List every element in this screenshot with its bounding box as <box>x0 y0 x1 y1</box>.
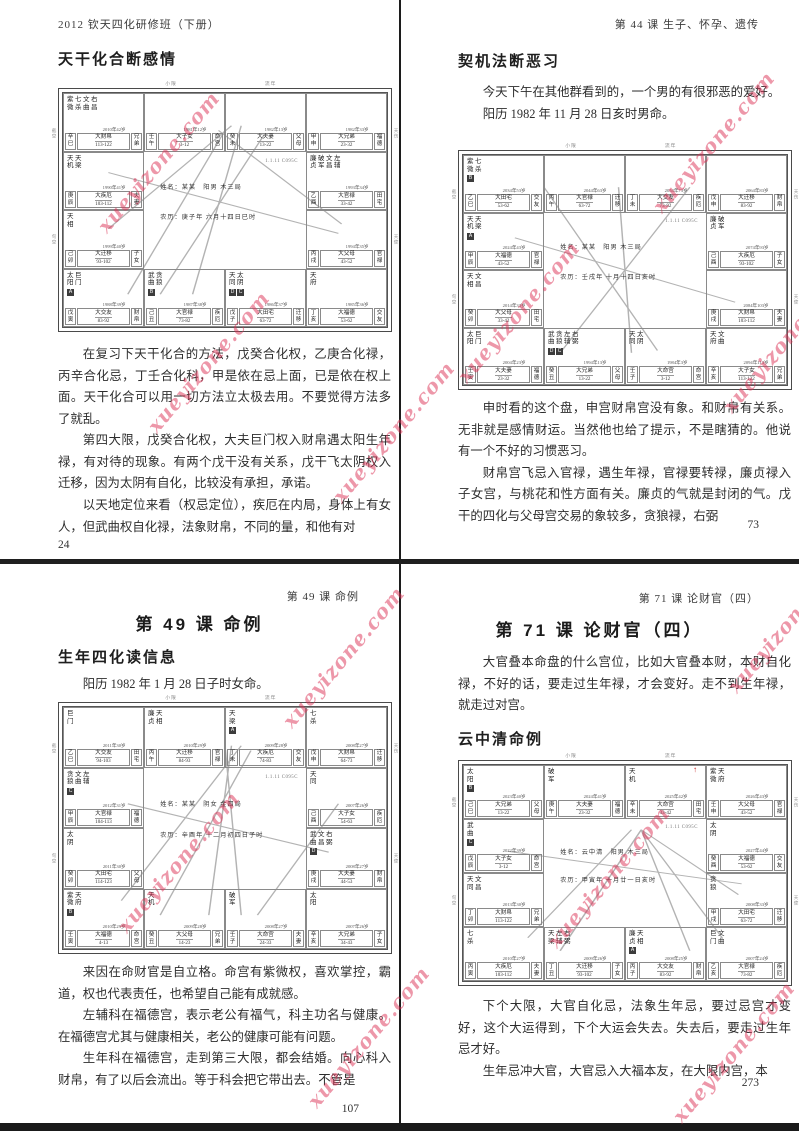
daxian-range: 53-62 <box>498 203 510 210</box>
palace-name-text: 父母 <box>532 802 541 815</box>
palace-name: 夫妻 <box>293 930 304 947</box>
daxian-box: 大子女54-63 <box>320 809 373 826</box>
stem-branch-text: 壬申 <box>709 802 718 815</box>
daxian-box: 大兄弟23-32 <box>320 133 373 150</box>
palace-cell-交友: 紫七 微杀B2034年53岁乙巳大田宅53-62交友 <box>463 155 544 213</box>
daxian-box: 大田宅63-72 <box>239 308 292 325</box>
paragraph: 阳历 1982 年 11 月 28 日亥时男命。 <box>458 104 791 126</box>
daxian-label: 大父母 <box>738 801 755 810</box>
daxian-box: 大官禄33-42 <box>320 191 373 208</box>
daxian-range: 33-42 <box>660 810 672 817</box>
daxian-label: 大官禄 <box>338 192 355 201</box>
palace-cell-交友: 天 梁A2009年28岁丁未大疾厄74-83交友 <box>225 707 306 768</box>
palace-name: 夫妻 <box>774 309 785 326</box>
daxian-range: 13-22 <box>260 142 272 149</box>
star-names: 天文 同昌 <box>467 876 483 891</box>
side-note-label: 天伤 <box>793 797 799 808</box>
daxian-box: 大迁移83-92 <box>720 194 773 211</box>
sihua-badges: D <box>310 848 317 855</box>
palace-name: 命宫 <box>531 854 542 871</box>
stem-branch-text: 己酉 <box>709 253 718 266</box>
palace-cell-命宫: 天太 同阴1984年3岁壬子大命宫3-12命宫 <box>625 328 706 386</box>
star-names: 贪 狼 <box>710 876 718 891</box>
palace-name-text: 财帛 <box>775 195 784 208</box>
sihua-badges: B <box>67 909 74 916</box>
daxian-box: 大疾厄103-112 <box>77 191 130 208</box>
intro-text: 阳历 1982 年 1 月 28 日子时女命。 <box>58 674 391 696</box>
paragraph: 今天下午在其他群看到的，一个男的有很邪恶的爱好。 <box>458 82 791 104</box>
daxian-box: 大父母33-42 <box>477 309 530 326</box>
stem-branch-text: 戊申 <box>709 195 718 208</box>
palace-name-text: 福德 <box>532 368 541 381</box>
palace-strip: 丙午大官禄63-72迁移 <box>546 194 623 211</box>
palace-name-text: 交友 <box>775 856 784 869</box>
palace-name-text: 夫妻 <box>294 932 303 945</box>
palace-name: 福德 <box>612 800 623 817</box>
stem-branch-text: 癸丑 <box>547 368 556 381</box>
daxian-label: 大子女 <box>338 810 355 819</box>
sihua-badges: B <box>467 785 474 792</box>
stem-branch: 己巳 <box>465 800 476 817</box>
palace-name-text: 命宫 <box>132 932 141 945</box>
birth-date: 农历：庚子年 六月十四日巳时 <box>160 212 256 221</box>
page-24: 2012 钦天四化研修班（下册） 天干化合断感情 紫七文右 微杀曲昌2010年4… <box>0 0 399 565</box>
palace-cell-田宅: 廉破文左 贞军昌辅1993年34岁乙酉大官禄33-42田宅 <box>306 152 387 211</box>
stem-branch: 癸未 <box>227 133 238 150</box>
palace-name: 田宅 <box>531 309 542 326</box>
palace-strip: 丁未大交友73-82疾厄 <box>627 194 704 211</box>
palace-name-text: 交友 <box>532 195 541 208</box>
palace-strip: 庚辰大疾厄103-112夫妻 <box>65 191 142 208</box>
palace-cell-迁移: 七 杀2008年27岁戊申大财帛64-73迁移 <box>306 707 387 768</box>
stem-branch-text: 壬子 <box>628 368 637 381</box>
side-note-label: 截空 <box>51 128 57 139</box>
stem-branch: 癸卯 <box>65 870 76 887</box>
daxian-box: 大夫妻23-32 <box>558 800 611 817</box>
star-names: 太巨 阳门 <box>67 272 83 287</box>
paragraph: 在复习下天干化合的方法，戊癸合化权，乙庚合化禄，丙辛合化忌，丁壬合化科，甲是依在… <box>58 344 391 430</box>
daxian-box: 大迁移84-93 <box>158 749 211 766</box>
palace-name-text: 官禄 <box>532 253 541 266</box>
palace-cell-迁移: 天太 同阴DC1986年37岁戊子大田宅63-72迁移 <box>225 269 306 328</box>
sihua-badge: A <box>67 289 74 296</box>
sihua-badges: A <box>467 233 474 240</box>
daxian-label: 大交友 <box>657 194 674 203</box>
daxian-box: 大命宫33-42 <box>639 800 692 817</box>
daxian-box: 大父母14-23 <box>158 930 211 947</box>
daxian-label: 大命宫 <box>257 931 274 940</box>
star-names: 破 军 <box>229 892 237 907</box>
palace-strip: 戊子大田宅63-72迁移 <box>227 308 304 325</box>
daxian-label: 大子女 <box>738 367 755 376</box>
daxian-range: 33-42 <box>498 318 510 325</box>
palace-cell-财帛: 太巨 阳门A1988年39岁戊寅大交友83-92财帛 <box>63 269 144 328</box>
palace-name: 子女 <box>774 251 785 268</box>
palace-cell-父母: 太 阴2011年30岁癸卯大田宅114-123父母 <box>63 828 144 889</box>
stem-branch-text: 庚戌 <box>709 310 718 323</box>
stem-branch: 辛巳 <box>65 133 76 150</box>
palace-name: 福德 <box>131 809 142 826</box>
stem-branch: 癸酉 <box>708 854 719 871</box>
palace-strip: 辛巳大财帛113-122兄弟 <box>65 133 142 150</box>
paragraph: 财帛宫飞忌入官禄，遇生年禄，官禄要转禄，廉贞禄入子女宫，与桃花和性方面有关。廉贞… <box>458 463 791 528</box>
daxian-range: 83-92 <box>660 972 672 979</box>
daxian-label: 大命宫 <box>657 367 674 376</box>
palace-cell-子女: 天 相1999年40岁己卯大迁移93-102子女 <box>63 210 144 269</box>
daxian-box: 大子女3-12 <box>477 854 530 871</box>
daxian-range: 93-102 <box>96 259 110 266</box>
palace-cell-夫妻: 七 杀2010年27岁丙寅大疾厄103-112夫妻 <box>463 927 544 981</box>
star-names: 太 阳 <box>310 892 318 907</box>
daxian-box: 大官禄63-72 <box>558 194 611 211</box>
palace-cell-命宫: 武 曲C2022年39岁戊辰大子女3-12命宫 <box>463 819 544 873</box>
palace-strip: 癸丑大兄弟13-22父母 <box>546 366 623 383</box>
palace-name-text: 田宅 <box>532 310 541 323</box>
palace-cell-迁移: 2044年63岁丙午大官禄63-72迁移 <box>544 155 625 213</box>
sihua-badge: C <box>467 839 474 846</box>
star-names: 武贪左右 曲狼辅弼 <box>548 331 580 346</box>
palace-name-text: 子女 <box>132 251 141 264</box>
daxian-box: 大官禄104-113 <box>77 809 130 826</box>
palace-cell-福德: 1982年33岁甲申大兄弟23-32福德 <box>306 93 387 152</box>
scan-edge <box>0 1123 799 1131</box>
palace-strip: 乙亥大官禄73-82疾厄 <box>708 962 785 979</box>
sihua-badge: A <box>629 947 636 954</box>
stem-branch-text: 丁未 <box>628 195 637 208</box>
daxian-range: 73-82 <box>660 203 672 210</box>
palace-cell-财帛: 廉天 贞相A2008年25岁丙子大交友83-92财帛 <box>625 927 706 981</box>
stem-branch-text: 乙亥 <box>709 964 718 977</box>
palace-name: 迁移 <box>774 908 785 925</box>
palace-cell-夫妻: 天天 机梁1990年41岁庚辰大疾厄103-112夫妻 <box>63 152 144 211</box>
stem-branch-text: 乙巳 <box>466 195 475 208</box>
sihua-badges: C <box>67 788 74 795</box>
stem-branch: 乙巳 <box>465 194 476 211</box>
palace-strip: 庚午大夫妻23-32福德 <box>546 800 623 817</box>
daxian-label: 大福德 <box>495 252 512 261</box>
palace-strip: 戊申大迁移83-92财帛 <box>708 194 785 211</box>
palace-name: 疾厄 <box>374 809 385 826</box>
palace-cell-官禄: 1994年35岁丙戌大父母43-52官禄 <box>306 210 387 269</box>
native-info: 姓名：云中清 阳男 木三局 <box>560 847 649 856</box>
stem-branch: 壬子 <box>227 930 238 947</box>
stem-branch: 癸丑 <box>546 366 557 383</box>
palace-name: 夫妻 <box>131 191 142 208</box>
palace-grid: 紫七 微杀B2034年53岁乙巳大田宅53-62交友2044年63岁丙午大官禄6… <box>462 154 788 386</box>
star-names: 廉天 贞相 <box>148 710 164 725</box>
palace-strip: 癸丑大父母14-23兄弟 <box>146 930 223 947</box>
daxian-label: 大夫妻 <box>257 133 274 142</box>
sihua-badge: D <box>229 289 236 296</box>
palace-name: 兄弟 <box>774 366 785 383</box>
palace-strip: 甲辰大福德43-52官禄 <box>465 251 542 268</box>
palace-strip: 甲申大兄弟23-32福德 <box>308 133 385 150</box>
paragraph: 来因在命财官是自立格。命宫有紫微权，喜欢掌控，霸道，权也代表责任，也希望自己能有… <box>58 962 391 1005</box>
stem-branch-text: 癸丑 <box>147 932 156 945</box>
daxian-range: 103-112 <box>495 972 511 979</box>
palace-strip: 壬申大父母43-52官禄 <box>708 800 785 817</box>
palace-name: 疾厄 <box>774 962 785 979</box>
palace-name: 父母 <box>293 133 304 150</box>
sihua-badges: B <box>467 175 474 182</box>
palace-cell-官禄: 廉天 贞相2010年29岁丙午大迁移84-93官禄 <box>144 707 225 768</box>
palace-strip: 庚戌大财帛103-112夫妻 <box>708 309 785 326</box>
body-text: 申时看的这个盘，申宫财帛宫没有象。和财帛有关系。无非就是感情财运。当然他也给了提… <box>458 398 791 527</box>
stem-branch-text: 辛未 <box>628 802 637 815</box>
stem-branch: 庚午 <box>546 800 557 817</box>
stem-branch-text: 己巳 <box>466 802 475 815</box>
palace-strip: 己丑大官禄73-82疾厄 <box>146 308 223 325</box>
page-header: 第 44 课 生子、怀孕、遗传 <box>615 16 759 32</box>
stem-branch: 庚戌 <box>308 870 319 887</box>
palace-cell-田宅: 天文 相昌2014年33岁癸卯大父母33-42田宅 <box>463 270 544 328</box>
palace-name-text: 子女 <box>613 964 622 977</box>
star-names: 天 机 <box>629 768 637 783</box>
red-annotation: ↑ <box>693 765 697 774</box>
palace-strip: 癸卯大田宅114-123父母 <box>65 870 142 887</box>
daxian-box: 大命宫24-33 <box>239 930 292 947</box>
palace-name-text: 官禄 <box>375 251 384 264</box>
stem-branch-text: 庚辰 <box>66 193 75 206</box>
star-names: 七 杀 <box>467 930 475 945</box>
flow-year-label: 流年 <box>265 694 277 701</box>
sihua-badge: B <box>467 175 474 182</box>
daxian-range: 44-53 <box>341 879 353 886</box>
palace-cell-命宫: 1981年12岁壬午大子女3-12命宫 <box>144 93 225 152</box>
palace-cell-夫妻: 2084年103岁庚戌大财帛103-112夫妻 <box>706 270 787 328</box>
palace-name: 福德 <box>531 366 542 383</box>
daxian-label: 大夫妻 <box>495 367 512 376</box>
star-names: 紫天 微府 <box>67 892 83 907</box>
palace-name-text: 疾厄 <box>694 195 703 208</box>
daxian-box: 大田宅53-62 <box>477 194 530 211</box>
daxian-box: 大官禄73-82 <box>158 308 211 325</box>
star-names: 天 机 <box>148 892 156 907</box>
palace-strip: 戊辰大子女3-12命宫 <box>465 854 542 871</box>
daxian-range: 103-112 <box>95 201 111 208</box>
daxian-box: 大子女3-12 <box>158 133 211 150</box>
paragraph: 以天地定位来看（权忌定位），疾厄在内局，身体上有女人，但武曲权自化禄，法象财帛，… <box>58 495 391 538</box>
stem-branch: 甲辰 <box>65 809 76 826</box>
stem-branch-text: 壬寅 <box>466 368 475 381</box>
palace-cell-命宫: 紫天 微府B2010年29岁壬寅大福德4-13命宫 <box>63 889 144 950</box>
stem-branch: 戊申 <box>708 194 719 211</box>
stem-branch-text: 戊寅 <box>66 310 75 323</box>
daxian-range: 23-32 <box>498 376 510 383</box>
palace-name: 交友 <box>374 308 385 325</box>
palace-name-text: 田宅 <box>694 802 703 815</box>
palace-name-text: 疾厄 <box>775 964 784 977</box>
stem-branch-text: 乙酉 <box>309 193 318 206</box>
chart-center: 1.1.11 C095C姓名：某某 阴女 金四局农历：辛酉年 十二月初四日子时 <box>144 768 306 889</box>
palace-name: 官禄 <box>374 250 385 267</box>
palace-cell-福德: 太巨 阳门2004年23岁壬寅大夫妻23-32福德 <box>463 328 544 386</box>
flow-year-label: 流年 <box>265 80 277 87</box>
daxian-range: 24-33 <box>260 940 272 947</box>
daxian-label: 大疾厄 <box>738 252 755 261</box>
stem-branch: 丙午 <box>146 749 157 766</box>
flow-year-label: 小限 <box>565 142 577 149</box>
palace-name: 子女 <box>131 250 142 267</box>
stem-branch-text: 癸酉 <box>709 856 718 869</box>
stem-branch-text: 壬午 <box>147 134 156 147</box>
palace-name: 兄弟 <box>131 133 142 150</box>
stem-branch-text: 丁亥 <box>309 310 318 323</box>
daxian-label: 大疾厄 <box>95 192 112 201</box>
daxian-range: 43-52 <box>498 261 510 268</box>
chart-code: 1.1.11 C095C <box>665 219 698 224</box>
daxian-box: 大父母43-52 <box>720 800 773 817</box>
intro-text: 大官叠本命盘的什么宫位，比如大官叠本财，本财自化禄，不好的话，要走过生年禄，才会… <box>458 652 791 717</box>
palace-name-text: 疾厄 <box>213 310 222 323</box>
stem-branch: 己丑 <box>146 308 157 325</box>
daxian-label: 大父母 <box>495 309 512 318</box>
daxian-range: 63-72 <box>741 918 753 925</box>
palace-name: 财帛 <box>693 962 704 979</box>
stem-branch-text: 乙巳 <box>66 750 75 763</box>
stem-branch: 戊寅 <box>65 308 76 325</box>
palace-cell-兄弟: 紫七文右 微杀曲昌2010年42岁辛巳大财帛113-122兄弟 <box>63 93 144 152</box>
stem-branch-text: 戊申 <box>309 750 318 763</box>
palace-name: 官禄 <box>531 251 542 268</box>
daxian-range: 113-122 <box>495 918 511 925</box>
palace-cell-夫妻: 破 军2008年27岁壬子大命宫24-33夫妻 <box>225 889 306 950</box>
intro-text: 今天下午在其他群看到的，一个男的有很邪恶的爱好。 阳历 1982 年 11 月 … <box>458 82 791 125</box>
stem-branch: 癸丑 <box>146 930 157 947</box>
daxian-label: 大财帛 <box>738 309 755 318</box>
stem-branch: 戊辰 <box>465 854 476 871</box>
palace-strip: 甲辰大官禄104-113福德 <box>65 809 142 826</box>
palace-cell-父母: 武贪左右 曲狼辅弼DC1994年13岁癸丑大兄弟13-22父母 <box>544 328 625 386</box>
stem-branch: 丙午 <box>546 194 557 211</box>
palace-cell-福德: 破 军2024年41岁庚午大夫妻23-32福德 <box>544 765 625 819</box>
palace-grid: 紫七文右 微杀曲昌2010年42岁辛巳大财帛113-122兄弟1981年12岁壬… <box>62 92 388 328</box>
palace-name-text: 财帛 <box>694 964 703 977</box>
birth-date: 农历：甲寅年 十月廿一日亥时 <box>560 875 656 884</box>
native-info: 姓名：某某 阴女 金四局 <box>160 799 242 808</box>
stem-branch: 壬子 <box>627 366 638 383</box>
star-names: 太 阴 <box>67 831 75 846</box>
page-107: 第 49 课 命例 第 49 课 命例 生年四化读信息 阳历 1982 年 1 … <box>0 566 399 1131</box>
palace-strip: 己卯大迁移93-102子女 <box>65 250 142 267</box>
daxian-range: 63-72 <box>260 318 272 325</box>
star-names: 廉天 贞相 <box>629 930 645 945</box>
palace-name-text: 父母 <box>132 871 141 884</box>
stem-branch-text: 庚戌 <box>309 871 318 884</box>
palace-name: 交友 <box>293 749 304 766</box>
daxian-label: 大疾厄 <box>495 963 512 972</box>
daxian-label: 大官禄 <box>95 810 112 819</box>
palace-cell-财帛: 2064年83岁戊申大迁移83-92财帛 <box>706 155 787 213</box>
palace-name: 父母 <box>612 366 623 383</box>
daxian-range: 93-102 <box>739 261 753 268</box>
daxian-label: 大田宅 <box>495 194 512 203</box>
birth-date: 农历：壬戌年 十月十四日亥时 <box>560 272 656 281</box>
palace-strip: 庚戌大夫妻44-53财帛 <box>308 870 385 887</box>
astrology-chart: 巨 门2011年30岁乙巳大交友94-103田宅廉天 贞相2010年29岁丙午大… <box>58 702 392 954</box>
stem-branch: 甲申 <box>308 133 319 150</box>
palace-name: 迁移 <box>374 749 385 766</box>
palace-name: 田宅 <box>131 749 142 766</box>
palace-name: 交友 <box>774 854 785 871</box>
daxian-label: 大田宅 <box>95 870 112 879</box>
side-note-label: 截空 <box>51 743 57 754</box>
stem-branch: 癸卯 <box>465 309 476 326</box>
palace-name-text: 兄弟 <box>775 368 784 381</box>
daxian-range: 13-22 <box>579 376 591 383</box>
daxian-range: 64-73 <box>341 758 353 765</box>
sihua-badges: DC <box>548 348 563 355</box>
side-note-label: 旬空 <box>451 895 457 906</box>
daxian-label: 大交友 <box>95 749 112 758</box>
palace-strip: 癸酉大福德53-62交友 <box>708 854 785 871</box>
palace-strip: 丙戌大父母43-52官禄 <box>308 250 385 267</box>
daxian-label: 大田宅 <box>738 909 755 918</box>
palace-name-text: 夫妻 <box>775 310 784 323</box>
star-names: 廉破文左 贞军昌辅 <box>310 155 342 170</box>
palace-name-text: 子女 <box>375 932 384 945</box>
section-title: 天干化合断感情 <box>58 48 177 69</box>
daxian-range: 94-103 <box>96 758 110 765</box>
daxian-box: 大兄弟34-43 <box>320 930 373 947</box>
palace-strip: 戊寅大交友83-92财帛 <box>65 308 142 325</box>
stem-branch: 己酉 <box>308 809 319 826</box>
palace-name-text: 福德 <box>375 134 384 147</box>
palace-name-text: 兄弟 <box>532 910 541 923</box>
palace-strip: 癸卯大父母33-42田宅 <box>465 309 542 326</box>
side-note-label: 天使 <box>793 895 799 906</box>
daxian-box: 大交友83-92 <box>77 308 130 325</box>
stem-branch-text: 丙寅 <box>466 964 475 977</box>
palace-name: 交友 <box>531 194 542 211</box>
paragraph: 左辅科在福德宫，表示老公有福气，科主功名与健康。在福德宫尤其与健康相关，老公的健… <box>58 1005 391 1048</box>
daxian-label: 大财帛 <box>95 133 112 142</box>
palace-name: 兄弟 <box>531 908 542 925</box>
daxian-box: 大疾厄93-102 <box>720 251 773 268</box>
daxian-range: 93-102 <box>577 972 591 979</box>
daxian-range: 34-43 <box>341 940 353 947</box>
star-names: 紫七 微杀 <box>467 158 483 173</box>
daxian-box: 大疾厄74-83 <box>239 749 292 766</box>
palace-cell-财帛: 武文右 曲昌弼D2008年27岁庚戌大夫妻44-53财帛 <box>306 828 387 889</box>
palace-name: 父母 <box>531 800 542 817</box>
stem-branch-text: 癸未 <box>228 134 237 147</box>
palace-strip: 乙巳大田宅53-62交友 <box>465 194 542 211</box>
stem-branch: 庚戌 <box>708 309 719 326</box>
palace-name-text: 福德 <box>132 811 141 824</box>
star-names: 天 相 <box>67 213 75 228</box>
daxian-range: 53-62 <box>741 864 753 871</box>
daxian-range: 54-63 <box>341 819 353 826</box>
page-number: 73 <box>748 519 760 531</box>
stem-branch-text: 丙午 <box>547 195 556 208</box>
stem-branch: 丁亥 <box>308 308 319 325</box>
daxian-range: 3-12 <box>661 376 670 383</box>
stem-branch-text: 己酉 <box>309 811 318 824</box>
chart-code: 1.1.11 C095C <box>265 159 298 164</box>
daxian-range: 74-83 <box>260 758 272 765</box>
palace-cell-官禄: 紫天 微府2026年43岁壬申大父母43-52官禄 <box>706 765 787 819</box>
native-info: 姓名：某某 阳男 木三局 <box>160 182 242 191</box>
daxian-box: 大福德4-13 <box>77 930 130 947</box>
daxian-label: 大官禄 <box>176 309 193 318</box>
daxian-label: 大官禄 <box>576 194 593 203</box>
page-number: 107 <box>342 1103 359 1115</box>
star-names: 破 军 <box>548 768 556 783</box>
flow-year-label: 小限 <box>165 80 177 87</box>
chart-center: 1.1.11 C095C姓名：某某 阳男 木三局农历：壬戌年 十月十四日亥时 <box>544 213 706 328</box>
daxian-label: 大子女 <box>495 855 512 864</box>
